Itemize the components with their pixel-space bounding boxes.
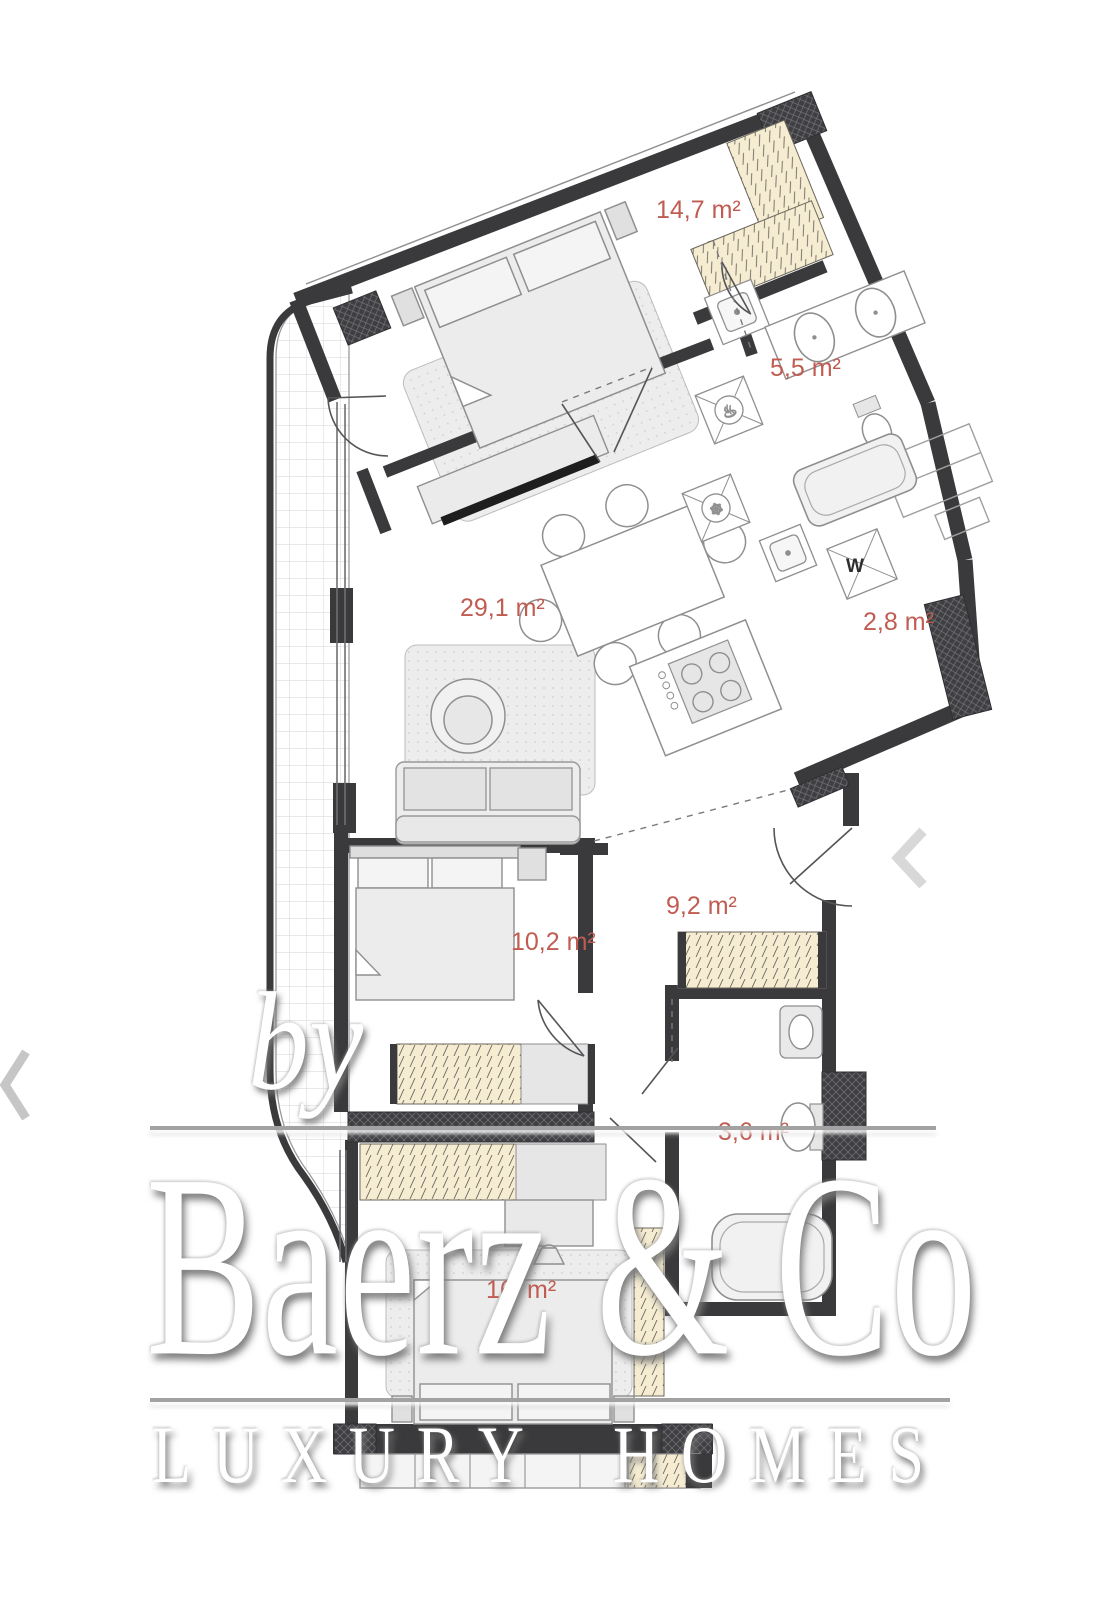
area-label-bedroom-bottom-right: m² <box>527 1276 556 1304</box>
listing-photo-floorplan: ♨ ❄ <box>0 0 1100 1600</box>
watermark-rule-bottom <box>150 1398 950 1402</box>
prev-photo-button-inner[interactable] <box>890 826 928 895</box>
oven-unit: ♨ <box>695 376 763 444</box>
washer-label: W <box>846 556 864 577</box>
area-label-hallway: 9,2 m² <box>666 892 737 920</box>
bathroom-bottom-fixtures <box>712 1006 832 1300</box>
area-label-bathroom-bottom: 3,6 m² <box>718 1118 789 1146</box>
area-label-laundry: 2,8 m² <box>863 608 934 636</box>
sofa <box>396 762 580 844</box>
area-label-bedroom-top: 14,7 m² <box>656 196 741 224</box>
balcony <box>270 290 352 1262</box>
prev-photo-button[interactable] <box>0 1046 30 1129</box>
bed-bottom <box>392 1200 634 1424</box>
watermark-rule-top <box>150 1126 936 1130</box>
area-label-bedroom-bottom-left: 16 <box>486 1276 514 1304</box>
chevron-left-icon <box>890 826 928 890</box>
area-label-bathroom-top: 5,5 m² <box>770 354 841 382</box>
laundry-fixtures <box>759 524 897 599</box>
floor-plan-drawing: ♨ ❄ <box>0 0 1100 1600</box>
bed-middle <box>350 846 546 1000</box>
armchair <box>431 679 505 753</box>
terrace-window-band <box>360 1454 712 1488</box>
bathroom-top-fixtures <box>765 271 925 530</box>
bathtub-bottom <box>712 1214 832 1300</box>
area-label-living: 29,1 m² <box>460 594 545 622</box>
area-label-bedroom-middle: 10,2 m² <box>511 928 596 956</box>
kitchen-island <box>630 620 782 756</box>
bathtub-top <box>790 430 920 529</box>
chevron-left-icon <box>0 1046 30 1124</box>
